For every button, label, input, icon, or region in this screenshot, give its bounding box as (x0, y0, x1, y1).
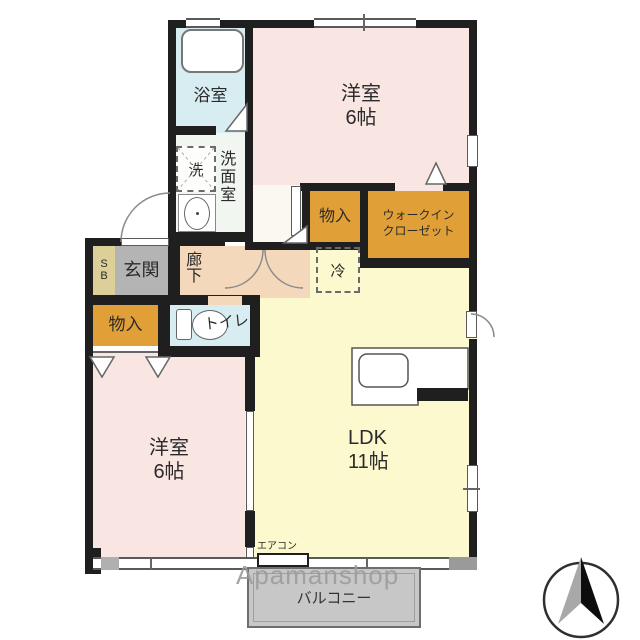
double-door-arc-right (265, 250, 303, 288)
bedroom-top-door-triangle (284, 226, 307, 243)
bifold-door-mark-2 (146, 357, 170, 377)
kitchen-partition-wall (417, 388, 468, 401)
front-door-arc (121, 193, 170, 242)
wic-door-triangle (426, 163, 446, 184)
plan-overlay (0, 0, 640, 640)
compass-icon (544, 557, 618, 637)
floor-plan: 洗 冷 浴室 洋室 6帖 洗面室 S B 玄関 廊下 物入 ウォークイン クロー… (0, 0, 640, 640)
right-door-arc (471, 314, 494, 337)
watermark-text: Apamanshop (236, 560, 399, 591)
bathroom-door-triangle (226, 104, 247, 131)
bifold-door-mark-1 (90, 357, 114, 377)
double-door-arc-left (225, 250, 263, 288)
kitchen-sink-icon (359, 354, 408, 387)
